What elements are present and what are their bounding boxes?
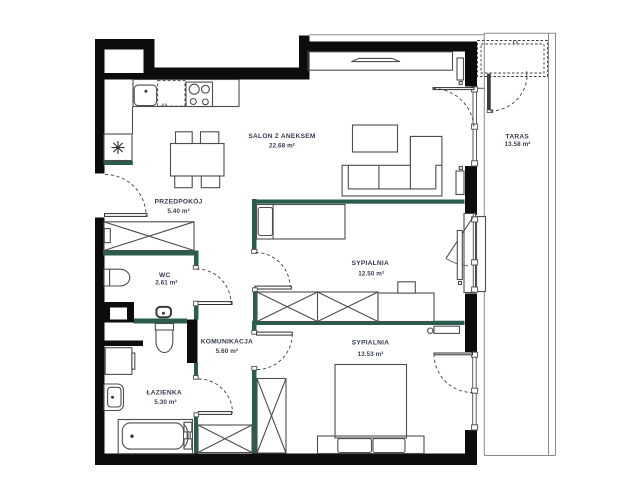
svg-text:5.40 m²: 5.40 m² — [167, 208, 189, 215]
svg-text:WC: WC — [159, 272, 171, 279]
svg-text:12.50 m²: 12.50 m² — [358, 270, 384, 277]
svg-text:PRZEDPOKÓJ: PRZEDPOKÓJ — [155, 197, 203, 206]
svg-text:SYPIALNIA: SYPIALNIA — [352, 260, 389, 267]
svg-text:22.68 m²: 22.68 m² — [269, 143, 295, 150]
svg-text:ŁAZIENKA: ŁAZIENKA — [147, 389, 182, 396]
svg-text:13.58 m²: 13.58 m² — [504, 141, 530, 148]
svg-text:5.30 m²: 5.30 m² — [154, 399, 176, 406]
svg-text:TARAS: TARAS — [506, 134, 530, 141]
svg-text:5.60 m²: 5.60 m² — [216, 348, 238, 355]
svg-text:KOMUNIKACJA: KOMUNIKACJA — [201, 339, 253, 346]
svg-text:2.61 m²: 2.61 m² — [155, 279, 177, 286]
svg-text:13.53 m²: 13.53 m² — [357, 351, 383, 358]
svg-text:SYPIALNIA: SYPIALNIA — [352, 339, 389, 346]
svg-text:SALON Z ANEKSEM: SALON Z ANEKSEM — [248, 133, 316, 140]
